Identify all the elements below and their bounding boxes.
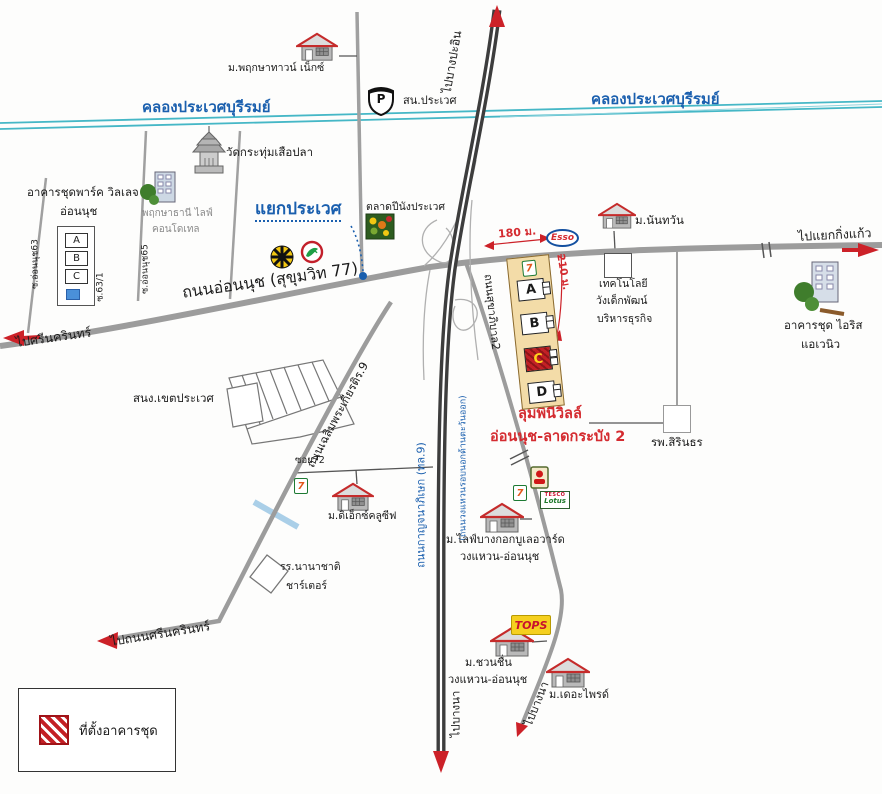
tops-logo: TOPS [511, 615, 551, 635]
chuan-chuen-label-1: ม.ชวนชื่น [465, 657, 512, 669]
exclusive-house-icon [333, 484, 373, 510]
tops-logo-text: TOPS [515, 619, 548, 632]
temple-label: วัดกระทุ่มเสือปลา [226, 146, 313, 159]
pride-house-icon [547, 659, 589, 687]
house-icons [297, 34, 635, 687]
park-village-block-c: C [65, 269, 88, 284]
kfc-logo-icon [531, 467, 548, 488]
hospital-box [663, 405, 691, 433]
police-shield-icon: P [366, 84, 396, 116]
minor-roads [28, 12, 677, 409]
technology-label-3: บริหารธุรกิจ [597, 314, 652, 326]
to-bang-na-motorway-label: ไปบางนา [450, 691, 462, 738]
pruksa-town-label: ม.พฤกษาทาวน์ เน็กซ์ [228, 63, 324, 75]
condo-block-b: B [520, 312, 549, 336]
market-label: ตลาดปีนังประเวศ [366, 202, 445, 214]
soi-onnut63-label: ซ.อ่อนนุช63 [32, 239, 41, 289]
district-office-label: สนง.เขตประเวศ [133, 392, 214, 405]
pruksathani-label-2: คอนโดเทล [152, 224, 200, 235]
park-village-label-1: อาคารชุดพาร์ค วิลเลจ [27, 186, 139, 199]
outer-ring-road-label: (ถนนวงแหวนรอบนอกด้านตะวันออก) [460, 395, 469, 540]
life-bangkok-label-2: วงแหวน-อ่อนนุช [460, 551, 539, 563]
technology-college-building [604, 253, 632, 278]
iris-label-1: อาคารชุด ไอริส [784, 319, 863, 332]
police-station-label: สน.ประเวศ [403, 95, 456, 107]
pruksathani-building-icon [140, 172, 175, 205]
soi72-label: ซอย72 [295, 456, 325, 466]
soi-63-1-label: ซ.63/1 [97, 272, 106, 301]
nantawan-label: ม.นันทวัน [635, 214, 684, 227]
soi-onnut65-label: ซ.อ่อนนุช65 [142, 244, 151, 294]
charter-label-2: ชาร์เตอร์ [286, 581, 327, 593]
park-village-building: A B C [57, 226, 95, 306]
park-village-pool-icon [66, 289, 80, 300]
chuan-chuen-label-2: วงแหวน-อ่อนนุช [448, 674, 527, 686]
hospital-label: รพ.สิรินธร [651, 436, 703, 449]
pruksathani-label-1: พฤกษาธานี ไลฟ์ [142, 208, 213, 219]
legend-box: ที่ตั้งอาคารชุด [18, 688, 176, 772]
pruksa-town-house-icon [297, 34, 337, 60]
legend-label: ที่ตั้งอาคารชุด [79, 720, 158, 741]
canal-label-west: คลองประเวศบุรีรมย์ [142, 99, 271, 116]
esso-logo: Esso [546, 229, 579, 247]
sunflower-logo-icon [271, 246, 293, 268]
prawet-junction-label: แยกประเวศ [255, 200, 341, 222]
project-name2-label: อ่อนนุช-ลาดกระบัง 2 [490, 430, 625, 446]
seven-eleven-icon-condo: 7 [522, 260, 538, 277]
condo-block-a: A [517, 278, 546, 302]
exclusive-label: ม.ดิเอ็กซ์คลูซีฟ [328, 511, 396, 523]
iris-building-icon [794, 262, 844, 314]
connector-stubs [294, 56, 664, 669]
park-village-block-b: B [65, 251, 88, 266]
market-icon [366, 214, 394, 239]
seven-eleven-icon-ring-road: 7 [513, 485, 527, 501]
technology-label-2: วังเด็กพัฒน์ [596, 296, 647, 308]
temple-icon [193, 126, 225, 173]
map-canvas: คลองประเวศบุรีรมย์ คลองประเวศบุรีรมย์ ไป… [0, 0, 882, 794]
charter-label-1: รร.นานาชาติ [280, 562, 341, 574]
legend-hatch-swatch [39, 715, 69, 745]
nantawan-house-icon [599, 204, 635, 228]
motorway-line [441, 10, 497, 753]
canal-label-east: คลองประเวศบุรีรมย์ [591, 91, 720, 108]
life-bangkok-house-icon [481, 504, 523, 532]
iris-label-2: แอเวนิว [801, 338, 840, 351]
park-village-label-2: อ่อนนุช [60, 205, 97, 218]
pride-label: ม.เดอะไพรด์ [549, 689, 609, 701]
technology-label-1: เทคโนโลยี [599, 279, 648, 291]
esso-logo-text: Esso [551, 233, 574, 243]
onnut-road-line [0, 245, 882, 346]
lotus-logo-text: Lotus [541, 498, 569, 505]
kanchanaphisek-road-label: ถนนกาญจนาภิเษก (ทล.9) [416, 442, 427, 568]
police-badge-letter: P [366, 92, 396, 106]
life-bangkok-label-1: ม.ไลฟ์บางกอกบูเลอวาร์ด [446, 534, 565, 546]
kbank-logo-icon [302, 242, 322, 262]
condo-block-c-highlighted: C [524, 346, 553, 373]
seven-eleven-icon-soi72: 7 [294, 478, 308, 494]
tesco-lotus-logo: TESCO Lotus [540, 491, 570, 509]
project-name-label: ลุมพินีวิลล์ [518, 407, 582, 423]
park-village-block-a: A [65, 233, 88, 248]
condo-block-d: D [527, 380, 556, 404]
